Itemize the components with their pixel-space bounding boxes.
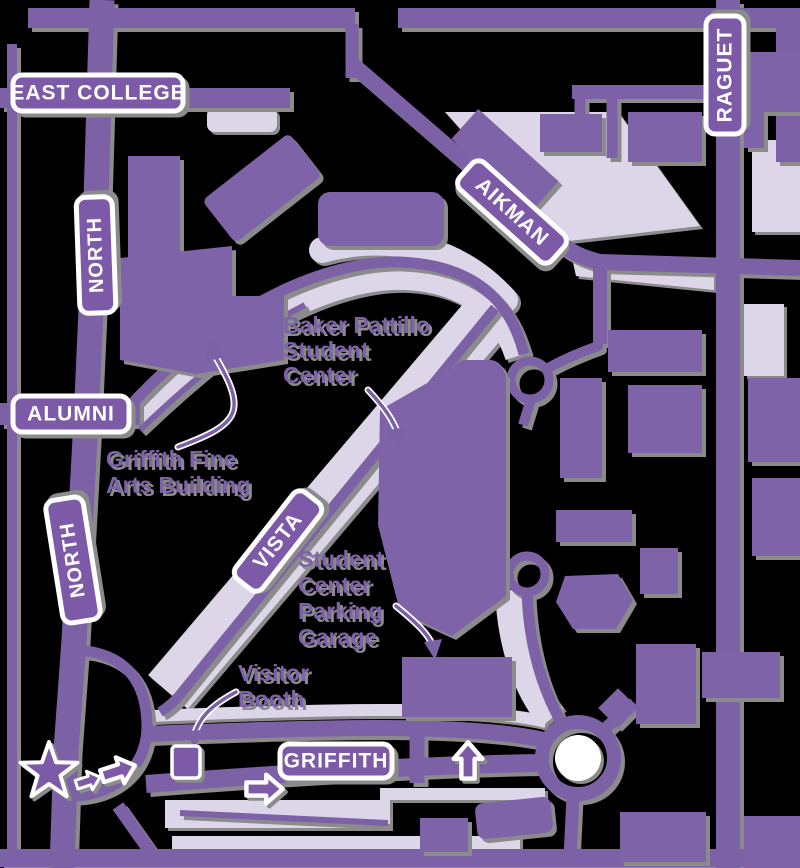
sign-text: EAST COLLEGE (10, 82, 185, 105)
road-garage-access (146, 728, 548, 741)
building (744, 816, 800, 868)
sign-text: GRIFFITH (284, 750, 389, 773)
traffic-circle-south (509, 556, 545, 592)
sign-text: NORTH (84, 217, 109, 294)
parking-lot (380, 788, 545, 800)
building (744, 112, 764, 148)
label-student-center-parking-garage: Student Center Parking Garage (298, 546, 384, 650)
label-line: Garage (298, 624, 377, 650)
street-sign-griffith: GRIFFITH (280, 744, 392, 778)
building (452, 360, 504, 410)
street-sign-raguet: RAGUET (706, 16, 744, 134)
sign-text: ALUMNI (27, 403, 115, 426)
building-griffith-fine-arts (120, 246, 284, 374)
label-visitor-booth: Visitor Booth (238, 660, 309, 712)
building (474, 796, 553, 840)
callout-arrowhead (424, 639, 442, 660)
label-line: Center (283, 362, 356, 388)
label-line: Parking (298, 598, 382, 624)
building (752, 478, 800, 556)
building (540, 114, 602, 152)
building (748, 378, 800, 462)
building (608, 330, 702, 372)
building (202, 133, 322, 243)
building (628, 112, 702, 162)
label-line: Visitor (238, 660, 309, 686)
campus-map: Baker Pattillo Student Center Griffith F… (0, 0, 800, 868)
building (702, 652, 780, 698)
building (640, 548, 678, 594)
label-line: Center (298, 572, 371, 598)
street-sign-alumni: ALUMNI (13, 396, 129, 432)
building (318, 192, 444, 246)
label-line: Baker Pattillo (283, 312, 430, 338)
label-griffith-fine-arts-building: Griffith Fine Arts Building (106, 446, 250, 498)
road-diagonal-stub (118, 806, 152, 854)
road-connector-curve (548, 346, 598, 368)
label-line: Booth (238, 686, 304, 712)
building (628, 385, 702, 453)
visitor-booth-icon (172, 746, 200, 778)
building (420, 818, 468, 852)
parking-lot (744, 304, 784, 376)
street-sign-east-college: EAST COLLEGE (10, 75, 185, 111)
sign-text: RAGUET (714, 28, 737, 123)
label-line: Arts Building (106, 472, 250, 498)
label-line: Student (298, 546, 384, 572)
map-canvas: Baker Pattillo Student Center Griffith F… (0, 0, 800, 868)
building (556, 510, 632, 542)
building (560, 378, 602, 478)
roundabout-island (555, 735, 601, 781)
building (556, 574, 633, 629)
street-sign-north-upper: NORTH (76, 196, 116, 313)
label-line: Griffith Fine (106, 446, 236, 472)
traffic-circle-north (511, 361, 549, 399)
building (620, 812, 706, 862)
label-line: Student (283, 337, 369, 363)
parking-lot (207, 108, 277, 132)
road-stub-south (570, 796, 573, 858)
building-parking-garage (402, 657, 512, 717)
building (746, 52, 800, 112)
building (636, 644, 696, 724)
